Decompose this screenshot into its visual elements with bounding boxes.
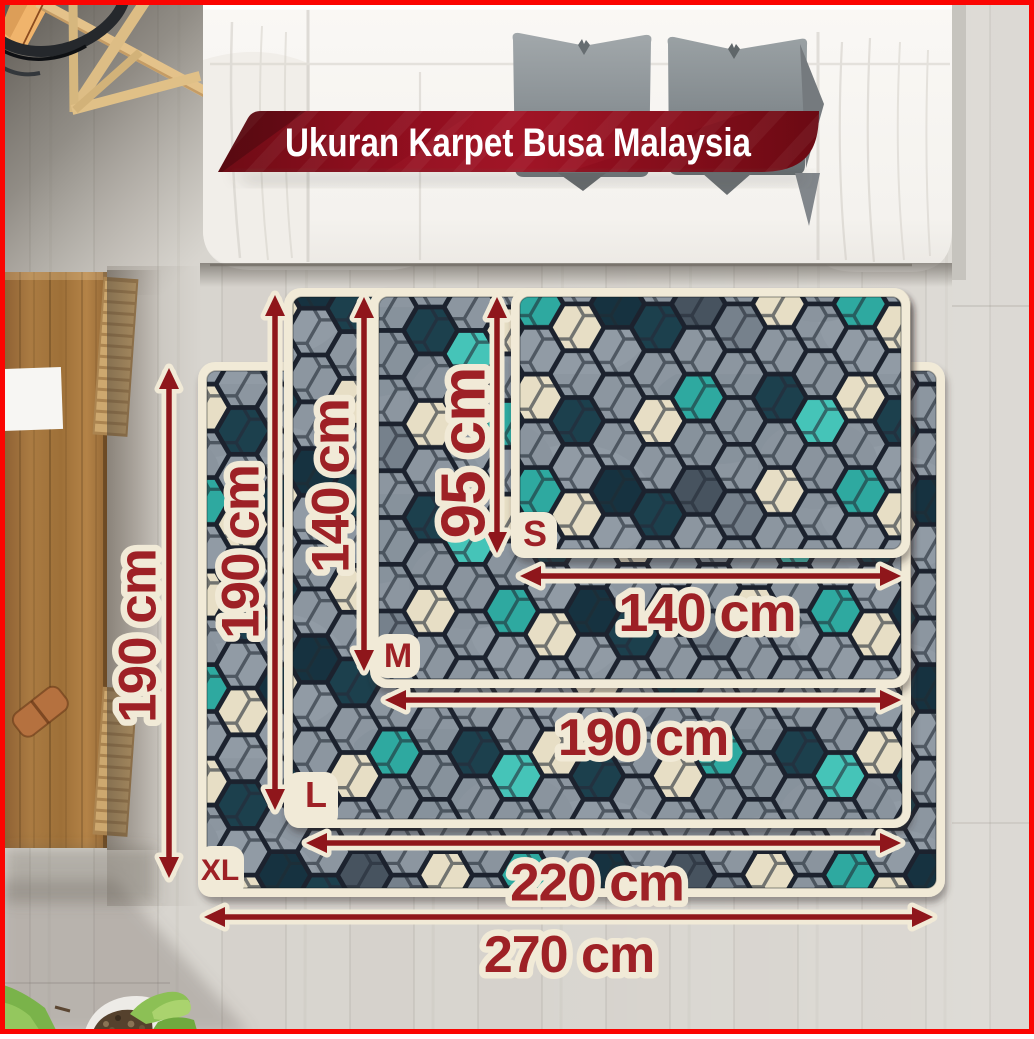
svg-text:S: S bbox=[523, 513, 547, 554]
svg-text:190 cm: 190 cm bbox=[212, 465, 271, 639]
svg-text:M: M bbox=[384, 637, 412, 675]
svg-text:220 cm: 220 cm bbox=[510, 854, 684, 913]
svg-text:XL: XL bbox=[201, 854, 239, 887]
svg-text:L: L bbox=[305, 774, 327, 815]
svg-text:270 cm: 270 cm bbox=[484, 926, 654, 984]
svg-text:140 cm: 140 cm bbox=[302, 399, 361, 573]
svg-text:190 cm: 190 cm bbox=[109, 549, 168, 723]
svg-text:190 cm: 190 cm bbox=[558, 709, 728, 767]
svg-text:140 cm: 140 cm bbox=[618, 583, 795, 643]
svg-text:95 cm: 95 cm bbox=[430, 368, 499, 539]
svg-text:Ukuran Karpet Busa Malaysia: Ukuran Karpet Busa Malaysia bbox=[285, 121, 752, 165]
